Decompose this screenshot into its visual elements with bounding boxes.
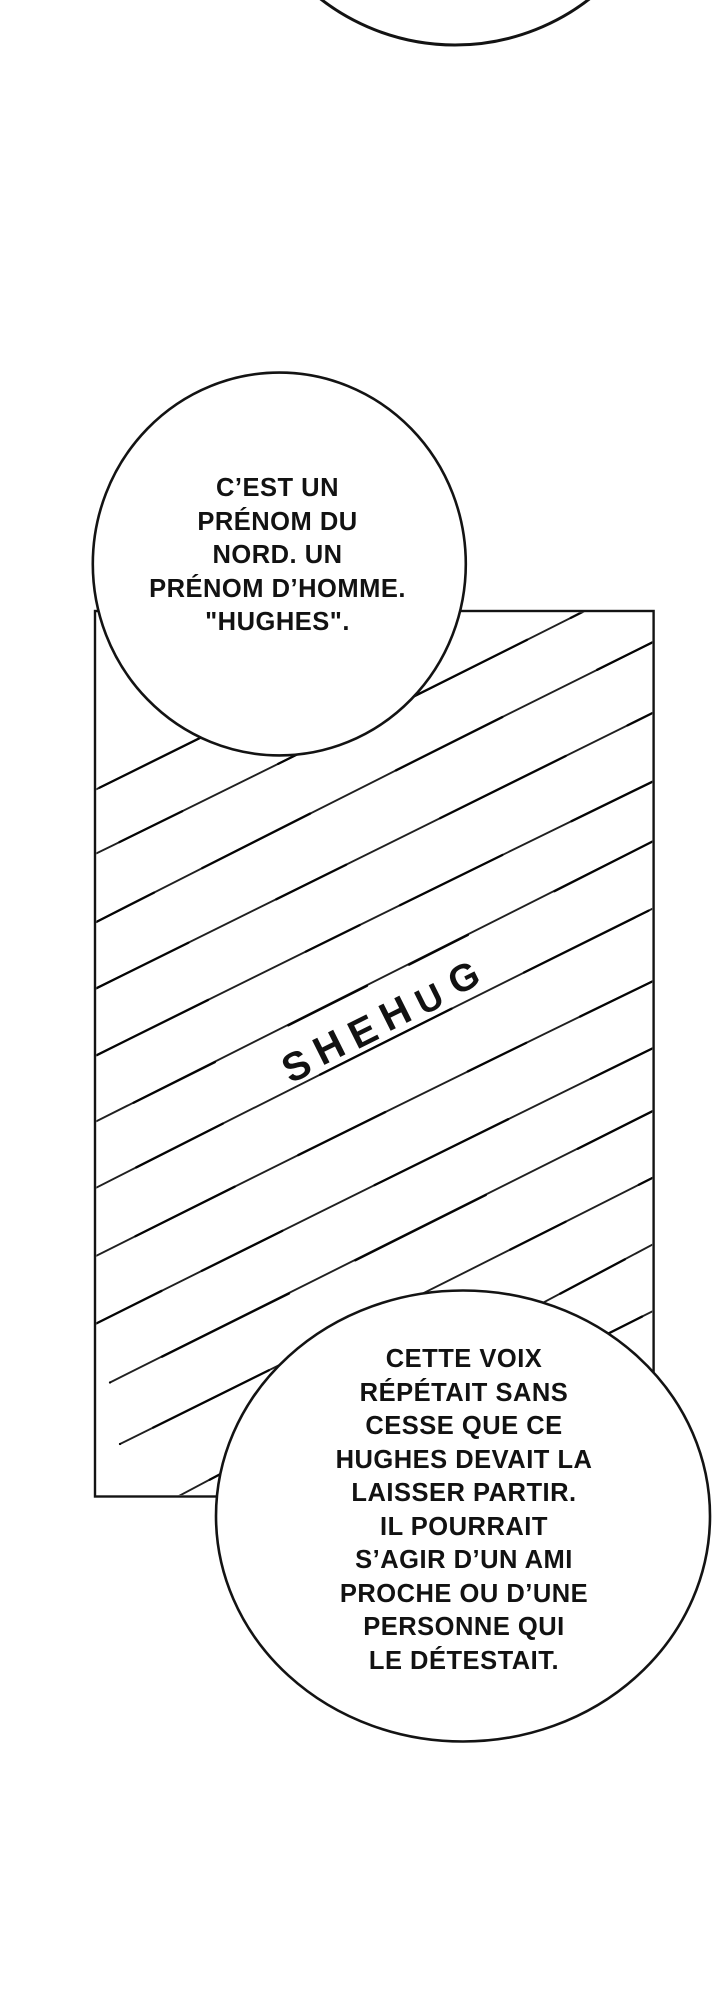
svg-text:CESSE QUE CE: CESSE QUE CE [365, 1412, 562, 1440]
svg-text:PERSONNE QUI: PERSONNE QUI [363, 1613, 565, 1641]
svg-text:NORD. UN: NORD. UN [212, 541, 342, 569]
svg-text:IL POURRAIT: IL POURRAIT [380, 1513, 548, 1541]
svg-text:PROCHE OU D’UNE: PROCHE OU D’UNE [340, 1580, 588, 1608]
svg-text:HUGHES DEVAIT LA: HUGHES DEVAIT LA [336, 1446, 593, 1474]
svg-text:S’AGIR D’UN AMI: S’AGIR D’UN AMI [355, 1546, 573, 1574]
svg-text:PRÉNOM D’HOMME.: PRÉNOM D’HOMME. [149, 574, 406, 603]
svg-text:LAISSER PARTIR.: LAISSER PARTIR. [351, 1479, 576, 1507]
svg-text:LE DÉTESTAIT.: LE DÉTESTAIT. [369, 1646, 559, 1675]
svg-text:RÉPÉTAIT SANS: RÉPÉTAIT SANS [360, 1378, 569, 1407]
svg-text:CETTE VOIX: CETTE VOIX [386, 1345, 543, 1373]
svg-text:"HUGHES".: "HUGHES". [205, 608, 350, 636]
svg-text:PRÉNOM DU: PRÉNOM DU [197, 507, 357, 536]
svg-text:C’EST UN: C’EST UN [216, 474, 339, 502]
